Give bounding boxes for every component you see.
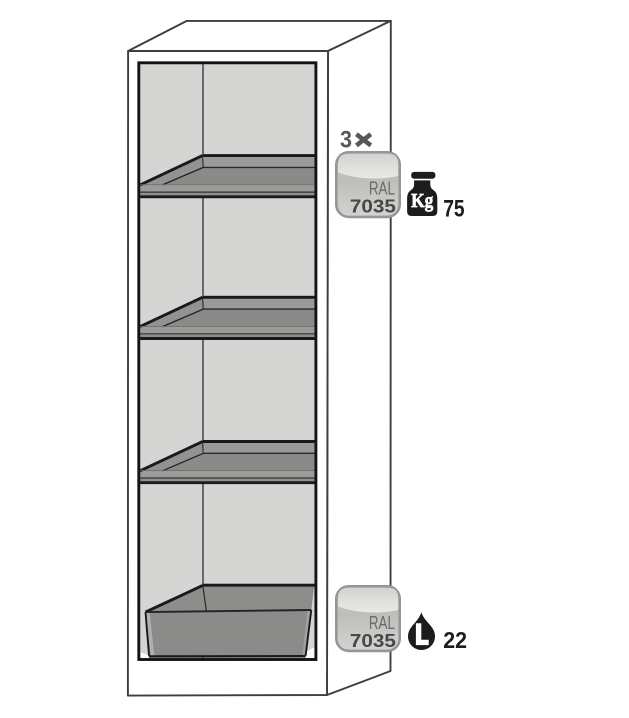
svg-text:7035: 7035	[350, 630, 396, 651]
svg-text:22: 22	[443, 627, 467, 653]
svg-text:3: 3	[340, 127, 352, 154]
svg-text:75: 75	[443, 197, 464, 223]
svg-text:7035: 7035	[350, 196, 396, 217]
svg-text:Kg: Kg	[411, 190, 434, 212]
